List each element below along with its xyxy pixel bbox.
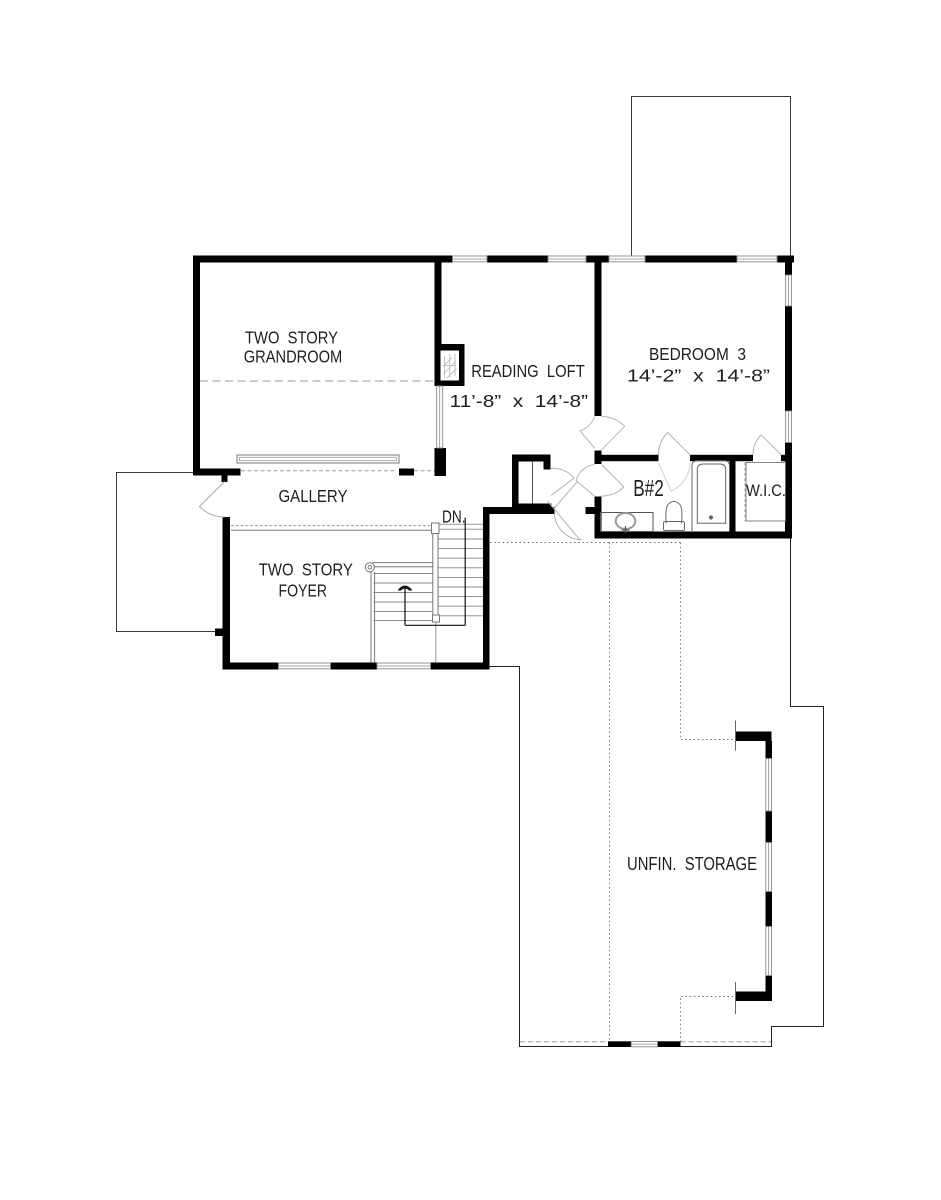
svg-text:TWO STORY: TWO STORY [245, 328, 338, 348]
svg-text:11’-8” x 14’-8”: 11’-8” x 14’-8” [450, 391, 589, 411]
svg-text:GALLERY: GALLERY [279, 486, 348, 506]
svg-text:W.I.C.: W.I.C. [746, 482, 786, 500]
svg-text:14’-2” x 14’-8”: 14’-2” x 14’-8” [627, 366, 770, 386]
svg-text:DN.: DN. [442, 507, 466, 527]
svg-text:GRANDROOM: GRANDROOM [244, 347, 343, 367]
svg-text:READING LOFT: READING LOFT [471, 361, 585, 381]
svg-text:UNFIN. STORAGE: UNFIN. STORAGE [627, 853, 757, 874]
svg-text:BEDROOM 3: BEDROOM 3 [649, 344, 746, 364]
svg-text:TWO STORY: TWO STORY [259, 560, 353, 580]
svg-text:B#2: B#2 [633, 475, 664, 501]
svg-text:FOYER: FOYER [279, 581, 328, 601]
